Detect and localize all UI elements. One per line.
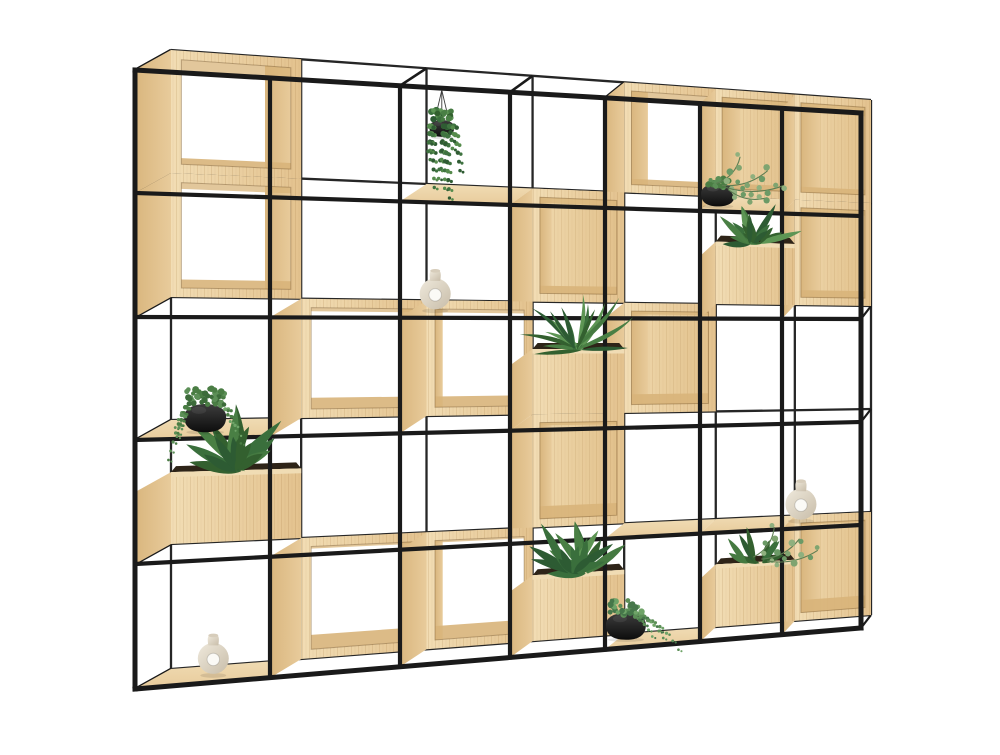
oak-planter-box-r4c1 bbox=[135, 462, 301, 564]
wood-inserts bbox=[135, 50, 871, 689]
product-photo-canvas bbox=[0, 0, 1000, 755]
shelving-unit-image bbox=[0, 0, 1000, 755]
